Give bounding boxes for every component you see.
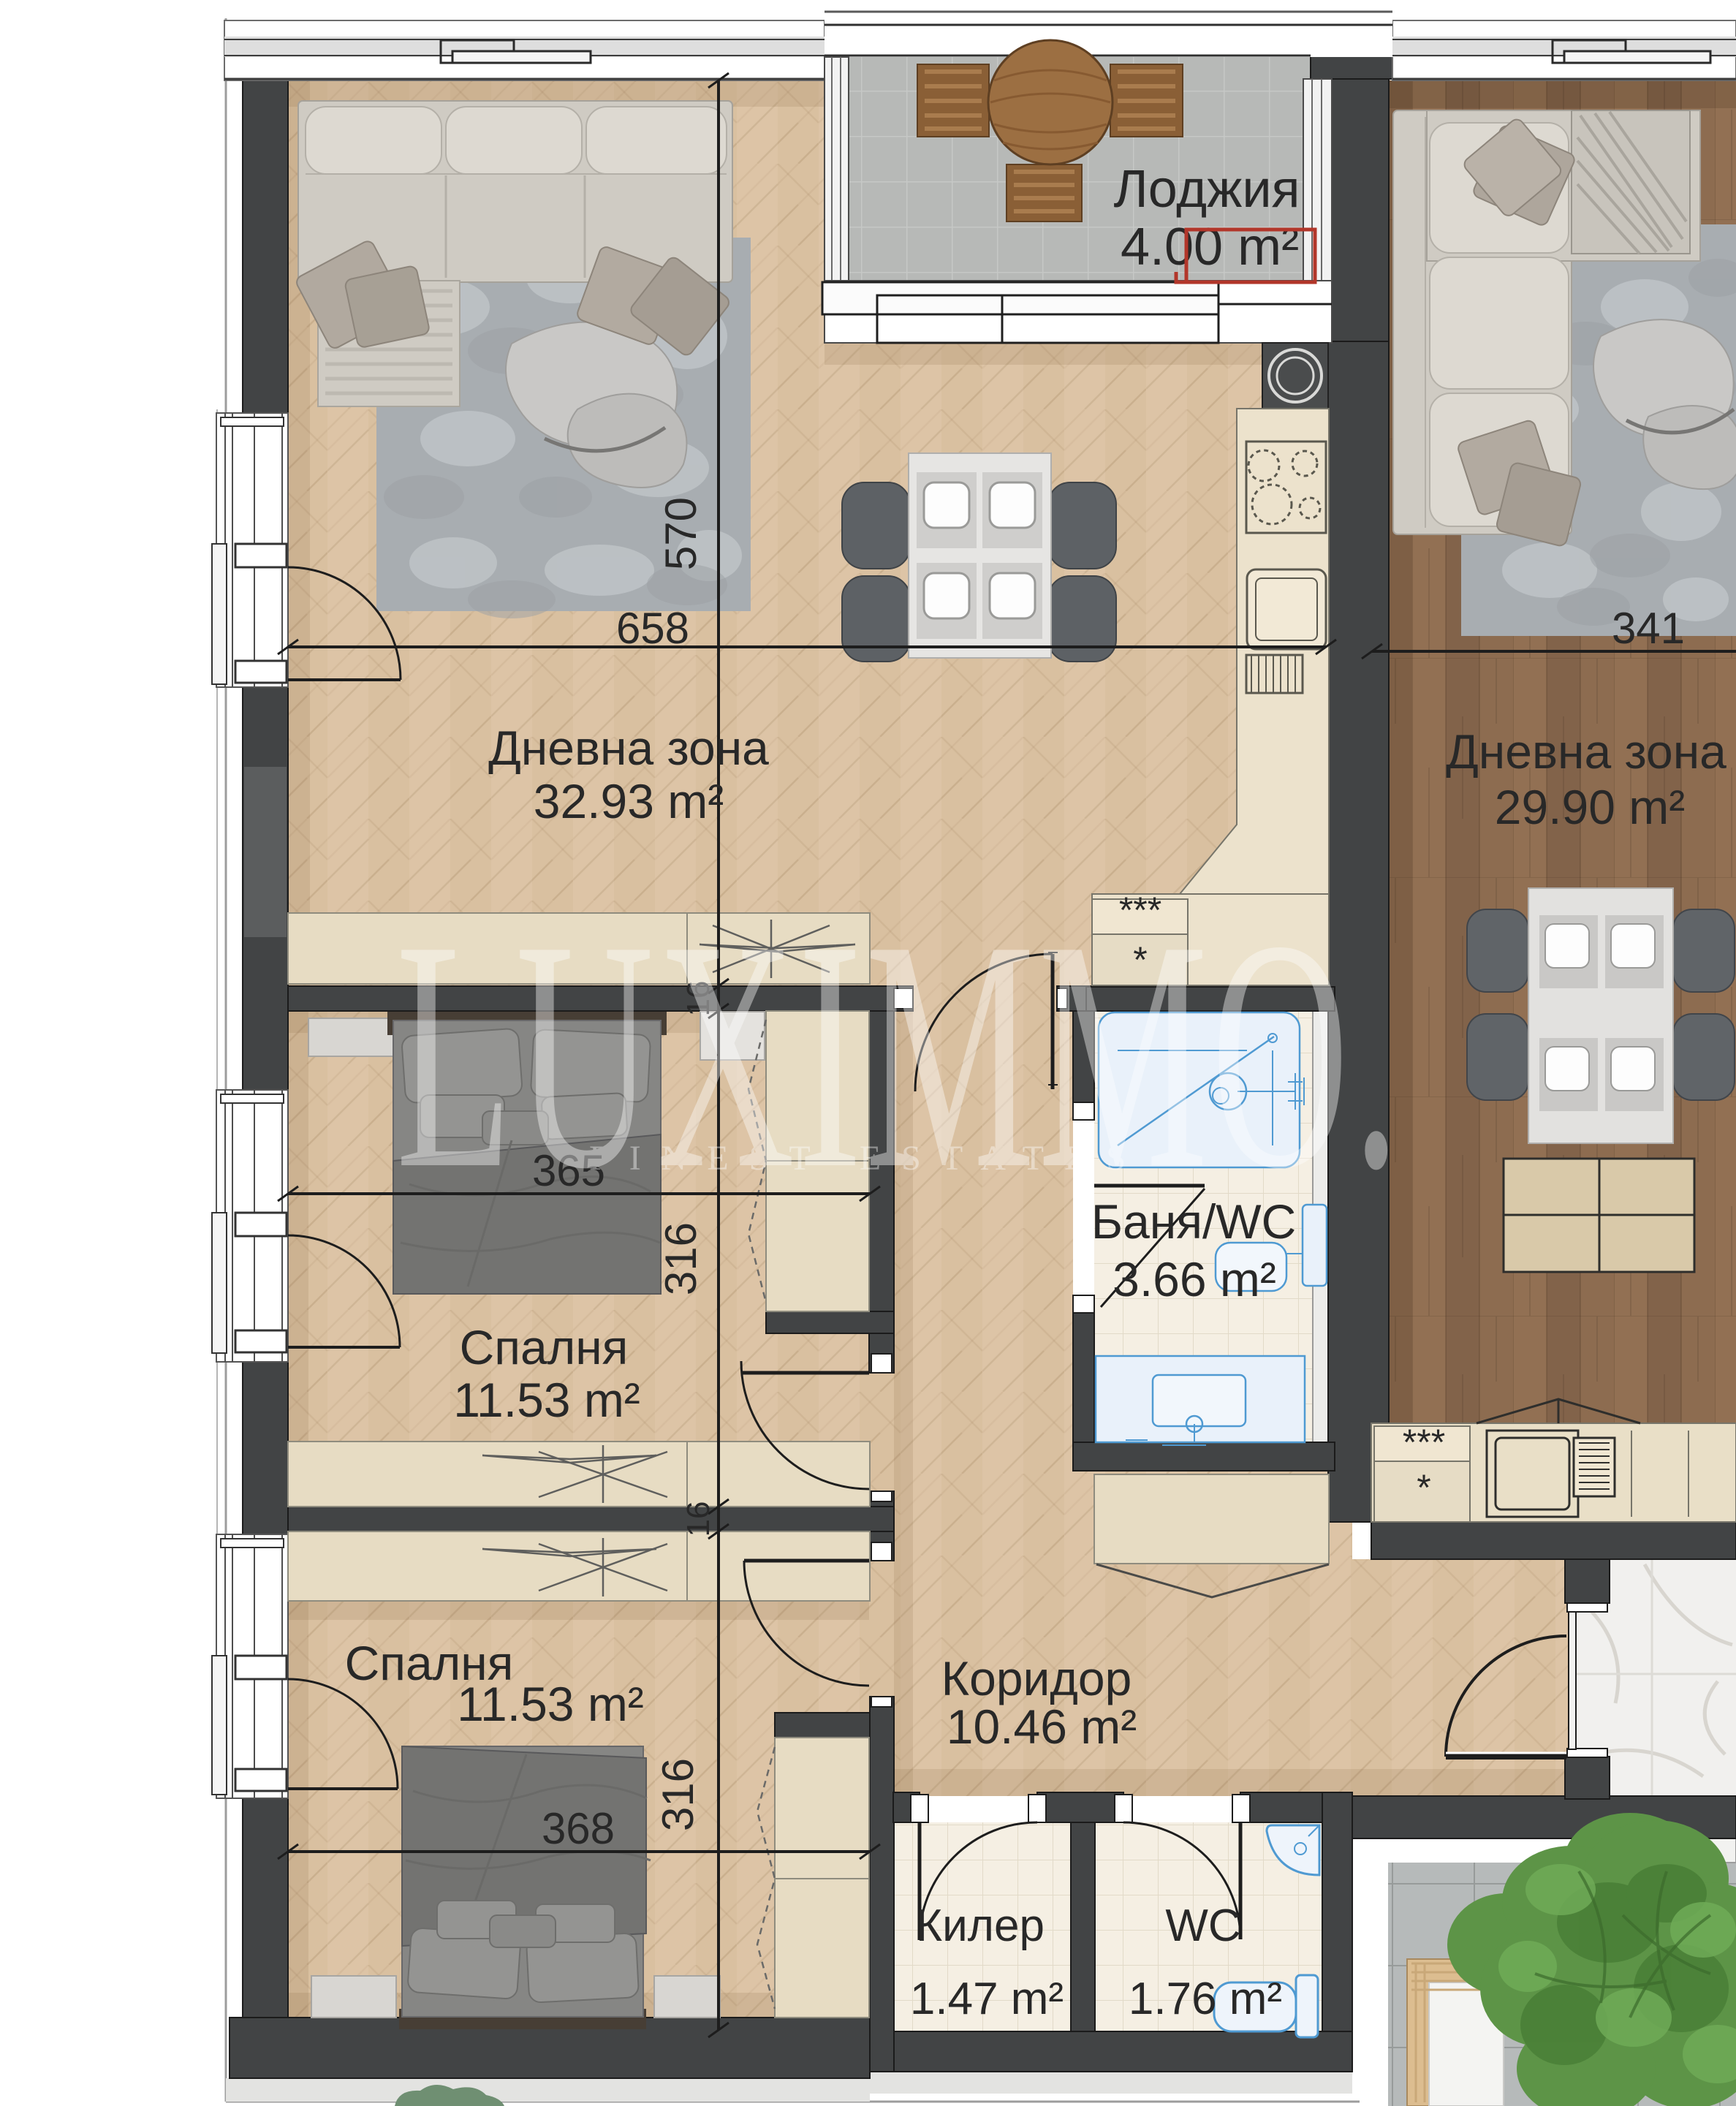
svg-text:4.00 m²: 4.00 m² — [1121, 218, 1299, 276]
svg-text:FINEST ESTATES: FINEST ESTATES — [589, 1139, 1146, 1178]
svg-text:570: 570 — [656, 497, 705, 570]
svg-text:32.93 m²: 32.93 m² — [534, 774, 724, 828]
svg-text:Лоджия: Лоджия — [1113, 160, 1300, 219]
svg-text:Килер: Килер — [916, 1901, 1045, 1951]
svg-text:Дневна зона: Дневна зона — [1446, 724, 1726, 779]
svg-text:11.53 m²: 11.53 m² — [453, 1373, 640, 1427]
svg-text:Коридор: Коридор — [941, 1651, 1132, 1705]
svg-text:658: 658 — [616, 604, 689, 653]
svg-text:Дневна зона: Дневна зона — [488, 721, 769, 775]
svg-text:3.66 m²: 3.66 m² — [1113, 1252, 1276, 1306]
svg-text:29.90 m²: 29.90 m² — [1495, 780, 1685, 834]
svg-text:WC: WC — [1165, 1901, 1240, 1951]
svg-text:10.46 m²: 10.46 m² — [947, 1700, 1137, 1754]
svg-text:1.76 m²: 1.76 m² — [1129, 1974, 1282, 2024]
svg-text:11.53 m²: 11.53 m² — [457, 1677, 644, 1731]
svg-text:316: 316 — [653, 1758, 702, 1831]
svg-text:*: * — [1417, 1467, 1430, 1508]
svg-text:Спалня: Спалня — [460, 1320, 629, 1374]
svg-text:368: 368 — [542, 1804, 615, 1853]
svg-text:***: *** — [1403, 1422, 1445, 1463]
svg-text:16: 16 — [681, 1501, 716, 1537]
svg-text:341: 341 — [1612, 604, 1685, 653]
svg-text:LUXIMMO.: LUXIMMO. — [396, 872, 1403, 1237]
svg-text:1.47 m²: 1.47 m² — [910, 1974, 1064, 2024]
